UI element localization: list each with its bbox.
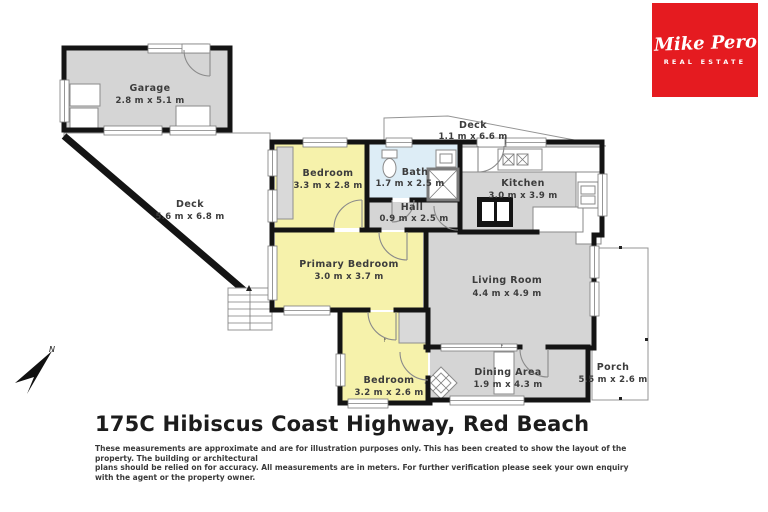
bedroom-bottom-dims: 3.2 m x 2.6 m xyxy=(354,388,423,398)
logo-brand-text: Mike Pero xyxy=(653,33,757,55)
primary-bedroom-label: Primary Bedroom xyxy=(299,259,399,270)
bath-label: Bath xyxy=(402,167,429,178)
bedroom-bottom-label: Bedroom xyxy=(364,375,415,386)
deck-left-dims: 5.6 m x 6.8 m xyxy=(155,212,224,222)
living-room-label: Living Room xyxy=(472,275,542,286)
stairs-icon xyxy=(228,285,272,330)
kitchen-dims: 3.0 m x 3.9 m xyxy=(488,191,557,201)
stove-icon xyxy=(498,149,542,170)
primary-bedroom-dims: 3.0 m x 3.7 m xyxy=(314,272,383,282)
disclaimer-text: These measurements are approximate and a… xyxy=(95,444,640,482)
kitchen-fireplace-icon xyxy=(477,197,513,227)
bedroom-top-wardrobe xyxy=(277,147,293,219)
bedroom-top-label: Bedroom xyxy=(303,168,354,179)
north-arrow-icon: N xyxy=(15,345,55,394)
kitchen-sink-icon xyxy=(578,182,598,208)
fireplace-marker-dining: F xyxy=(501,344,504,350)
logo-subtitle-text: REAL ESTATE xyxy=(664,58,747,66)
dining-dims: 1.9 m x 4.3 m xyxy=(473,380,542,390)
porch-dims: 5.5 m x 2.6 m xyxy=(578,375,647,385)
bath-dims: 1.7 m x 2.5 m xyxy=(375,179,444,189)
porch-label: Porch xyxy=(597,362,630,373)
primary-bedroom-floor xyxy=(275,232,423,310)
garage-label: Garage xyxy=(130,83,171,94)
deck-top-label: Deck xyxy=(459,120,487,131)
living-room-dims: 4.4 m x 4.9 m xyxy=(472,289,541,299)
deck-top-dims: 1.1 m x 6.6 m xyxy=(438,132,507,142)
mike-pero-logo: Mike Pero REAL ESTATE xyxy=(652,3,758,97)
bath-sink-icon xyxy=(436,150,456,167)
bedroom-bottom-wardrobe xyxy=(399,312,427,343)
kitchen-label: Kitchen xyxy=(501,178,545,189)
property-address-title: 175C Hibiscus Coast Highway, Red Beach xyxy=(95,412,589,436)
bedroom-top-dims: 3.3 m x 2.8 m xyxy=(293,181,362,191)
toilet-icon xyxy=(382,150,397,178)
disclaimer-line-1: These measurements are approximate and a… xyxy=(95,444,640,463)
fireplace-marker-bedroom: F xyxy=(384,338,387,344)
dining-label: Dining Area xyxy=(474,367,541,378)
disclaimer-line-2: plans should be relied on for accuracy. … xyxy=(95,463,640,482)
compass-label: N xyxy=(49,345,55,354)
garage-dims: 2.8 m x 5.1 m xyxy=(115,96,184,106)
deck-left-label: Deck xyxy=(176,199,204,210)
floorplan-page: Garage 2.8 m x 5.1 m Deck 5.6 m x 6.8 m … xyxy=(0,0,768,512)
hall-label: Hall xyxy=(401,202,423,213)
hall-dims: 0.9 m x 2.5 m xyxy=(379,214,448,224)
